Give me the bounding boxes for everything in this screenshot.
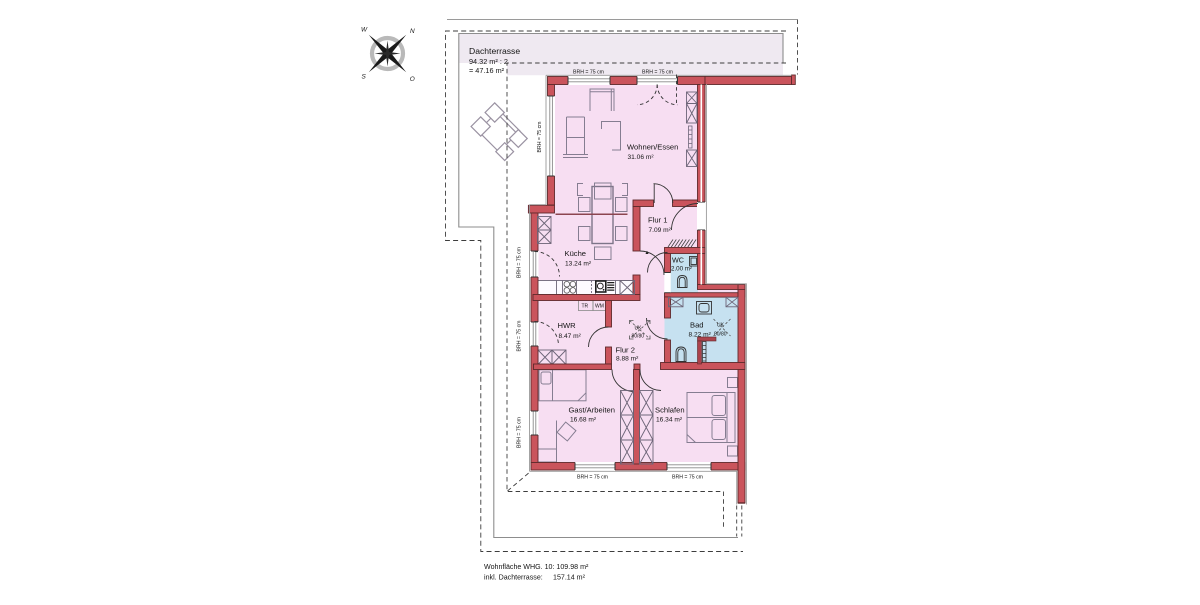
svg-text:94.32 m² : 2: 94.32 m² : 2 <box>469 57 508 66</box>
svg-text:80/80: 80/80 <box>714 332 727 338</box>
svg-text:8.22 m²: 8.22 m² <box>689 331 712 338</box>
svg-text:157.14 m²: 157.14 m² <box>553 574 586 582</box>
svg-text:BRH = 75 cm: BRH = 75 cm <box>573 69 604 75</box>
svg-text:31.06 m²: 31.06 m² <box>628 154 655 161</box>
svg-text:TR: TR <box>582 303 589 309</box>
svg-text:Bad: Bad <box>690 321 704 330</box>
svg-text:WM: WM <box>595 303 604 309</box>
svg-text:16.34 m²: 16.34 m² <box>656 416 683 423</box>
svg-text:S: S <box>362 74 367 81</box>
svg-text:Gast/Arbeiten: Gast/Arbeiten <box>569 406 615 415</box>
svg-text:2.00 m²: 2.00 m² <box>671 265 692 272</box>
svg-text:W: W <box>361 27 368 34</box>
svg-text:8.47 m²: 8.47 m² <box>559 333 582 340</box>
svg-text:Wohnfläche WHG. 10: 109.98 m²: Wohnfläche WHG. 10: 109.98 m² <box>484 563 589 571</box>
svg-text:16.68 m²: 16.68 m² <box>570 416 597 423</box>
svg-text:BRH = 75 cm: BRH = 75 cm <box>577 475 608 481</box>
svg-text:BRH = 75 cm: BRH = 75 cm <box>642 69 673 75</box>
svg-text:Schlafen: Schlafen <box>655 406 685 415</box>
svg-text:UK: UK <box>717 323 725 329</box>
svg-text:Küche: Küche <box>565 249 587 258</box>
svg-text:N: N <box>410 28 415 35</box>
svg-text:HWR: HWR <box>558 321 577 330</box>
svg-text:BRH = 75 cm: BRH = 75 cm <box>672 475 703 481</box>
svg-text:WC: WC <box>672 256 684 265</box>
svg-text:13.24 m²: 13.24 m² <box>565 260 592 267</box>
svg-text:8.88 m²: 8.88 m² <box>616 356 639 363</box>
svg-text:BRH = 75 cm: BRH = 75 cm <box>537 122 543 153</box>
svg-text:O: O <box>410 76 415 83</box>
svg-text:Flur 2: Flur 2 <box>616 346 635 355</box>
svg-text:= 47.16 m²: = 47.16 m² <box>469 66 505 75</box>
svg-text:80/80: 80/80 <box>632 334 645 340</box>
svg-text:Dachterrasse: Dachterrasse <box>469 46 520 56</box>
svg-text:UK: UK <box>635 326 643 332</box>
svg-text:Wohnen/Essen: Wohnen/Essen <box>627 143 678 152</box>
svg-text:7.09 m²: 7.09 m² <box>649 227 672 234</box>
svg-text:inkl. Dachterrasse:: inkl. Dachterrasse: <box>484 574 543 582</box>
svg-text:BRH = 75 cm: BRH = 75 cm <box>517 321 523 352</box>
svg-text:Flur 1: Flur 1 <box>648 216 667 225</box>
svg-text:BRH = 75 cm: BRH = 75 cm <box>517 247 523 278</box>
svg-text:BRH = 75 cm: BRH = 75 cm <box>517 417 523 448</box>
